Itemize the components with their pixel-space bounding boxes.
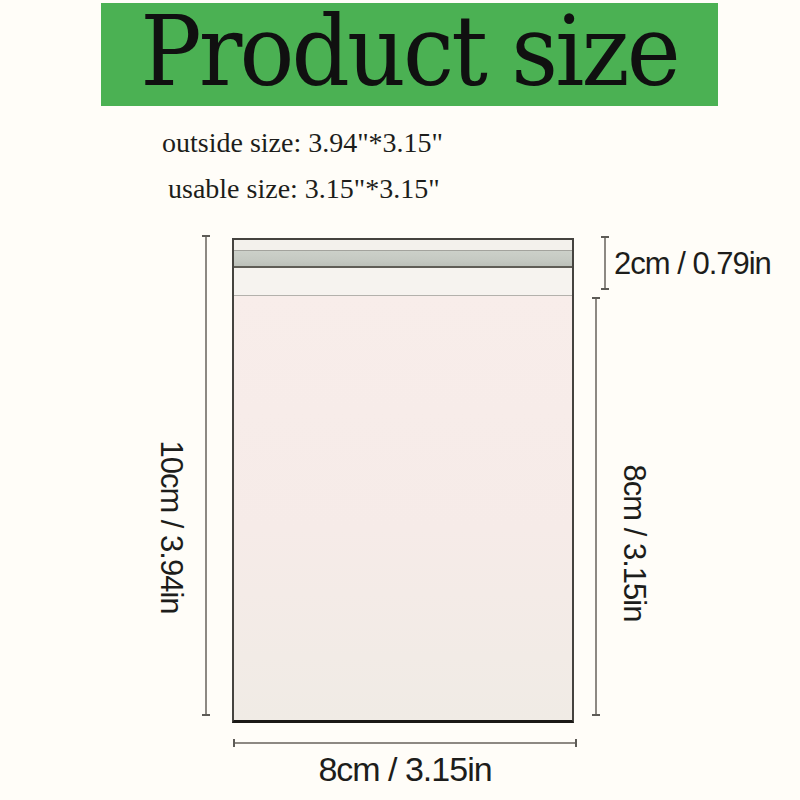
bag-adhesive-strip — [234, 250, 572, 268]
outside-size-text: outside size: 3.94"*3.15" — [162, 120, 443, 166]
flap-dimension-label: 2cm / 0.79in — [614, 246, 771, 282]
bag-flap — [234, 240, 572, 250]
size-specs: outside size: 3.94"*3.15" usable size: 3… — [162, 120, 443, 212]
bag-diagram — [232, 238, 574, 723]
dimension-line-flap — [604, 236, 606, 290]
bag-body — [234, 296, 572, 720]
usable-size-text: usable size: 3.15"*3.15" — [162, 166, 443, 212]
right-height-dimension-label: 8cm / 3.15in — [616, 465, 652, 622]
dimension-line-bottom-width — [233, 742, 577, 744]
page-title: Product size — [141, 3, 679, 106]
title-banner: Product size — [101, 3, 718, 106]
dimension-line-left-height — [205, 235, 207, 716]
dimension-line-right-height — [595, 297, 597, 716]
product-size-infographic: Product size outside size: 3.94"*3.15" u… — [0, 0, 800, 800]
left-height-dimension-label: 10cm / 3.94in — [153, 440, 189, 613]
bottom-width-dimension-label: 8cm / 3.15in — [318, 750, 491, 789]
bag-fold-strip — [234, 268, 572, 296]
